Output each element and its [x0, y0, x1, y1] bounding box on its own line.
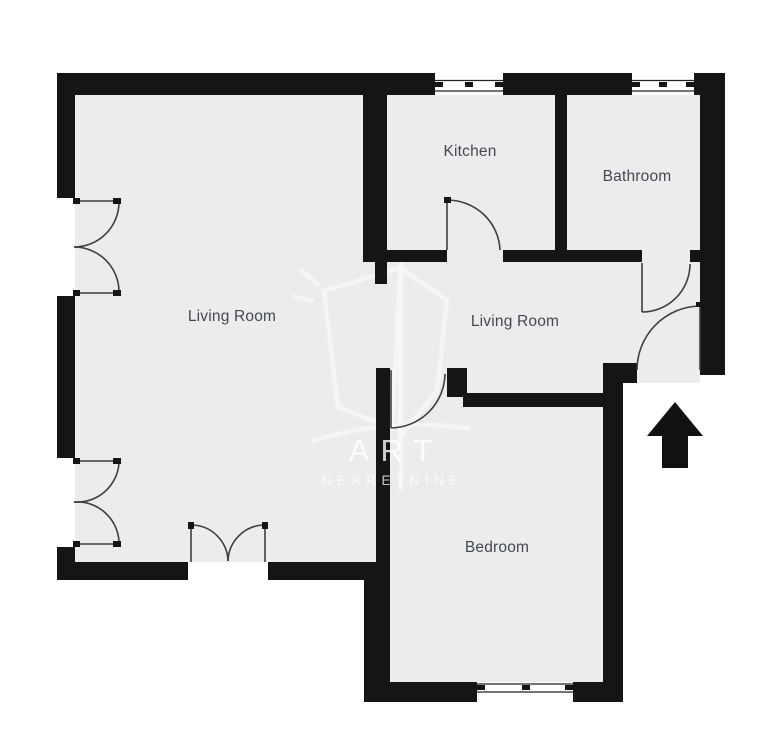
window-tick [686, 82, 694, 87]
wall-left-1 [57, 73, 75, 198]
bathroom-window [632, 73, 694, 95]
kitchen-window [435, 73, 503, 95]
label-living-room-hall: Living Room [471, 313, 559, 330]
opening-french-door-2 [57, 458, 75, 547]
wall-divider-stub [375, 262, 387, 284]
window-tick [495, 82, 503, 87]
window-tick [465, 82, 473, 87]
floorplan-image: Kitchen Bathroom Living Room Living Room… [0, 0, 775, 750]
window-tick [522, 685, 530, 690]
watermark-line2: NEKRETNINE [322, 473, 464, 488]
floor-kitchen [363, 73, 567, 262]
floor-living-room [57, 73, 390, 580]
opening-french-door-1 [57, 198, 75, 296]
opening-french-door-3 [188, 562, 268, 580]
wall-bedroom-left-lower [364, 562, 390, 702]
wall-living-bottom-1 [57, 562, 188, 580]
wall-top-2 [503, 73, 632, 95]
label-kitchen: Kitchen [443, 143, 496, 160]
wall-divider-bathroom [555, 95, 567, 250]
bedroom-window [477, 682, 573, 702]
wall-bedroom-bottom-1 [364, 682, 477, 702]
label-bedroom: Bedroom [465, 539, 529, 556]
wall-bathroom-bottom [567, 250, 642, 262]
window-tick [659, 82, 667, 87]
wall-bedroom-right [603, 363, 623, 702]
window-tick [565, 685, 573, 690]
wall-kitchen-bottom-1 [387, 250, 447, 262]
watermark-line1: ART [349, 433, 443, 468]
window-tick [632, 82, 640, 87]
window-tick [435, 82, 443, 87]
wall-left-2 [57, 296, 75, 458]
wall-divider-kitchen [363, 95, 387, 262]
entrance-arrow-icon [647, 402, 703, 468]
wall-top-1 [57, 73, 435, 95]
label-bathroom: Bathroom [603, 168, 672, 185]
wall-bathroom-jamb [690, 250, 700, 262]
wall-right [700, 73, 725, 375]
label-living-room: Living Room [188, 308, 276, 325]
wall-bedroom-bottom-2 [573, 682, 623, 702]
wall-kitchen-bottom-2 [503, 250, 567, 262]
wall-bedroom-top [463, 393, 603, 407]
floorplan-svg: Kitchen Bathroom Living Room Living Room… [0, 0, 775, 750]
wall-bedroom-door-jamb [447, 368, 467, 397]
window-tick [477, 685, 485, 690]
